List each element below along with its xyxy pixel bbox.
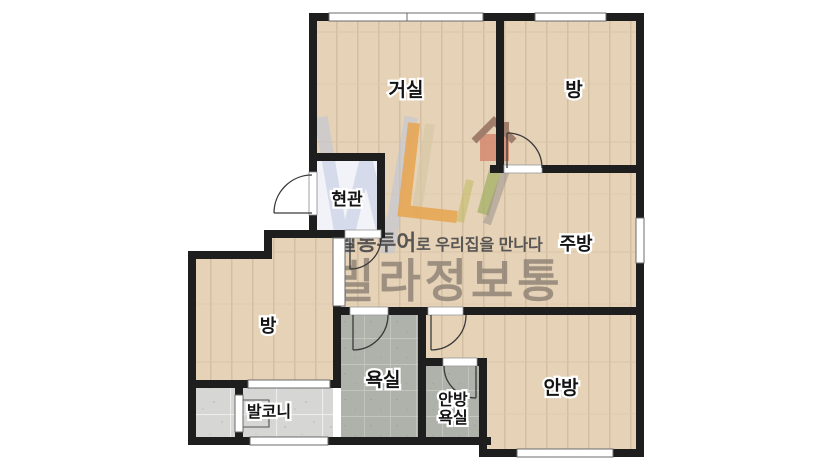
label-kitchen: 주방 [559,234,593,254]
floorplan-canvas: 빌통투어로 우리집을 만나다 빌라정보통 [0,0,840,472]
wall-segment [483,449,517,457]
threshold-bedroom-top [504,165,542,173]
wall-segment [188,251,272,259]
wall-segment [264,230,272,259]
wall-segment [418,315,426,445]
wall-segment [463,307,644,315]
label-bedroom-left: 방 [260,316,277,336]
wall-segment [542,165,644,173]
window-top-bedroom [535,13,606,21]
label-master-bathroom-line1: 안방 [438,391,468,409]
floor-bedroom-left [196,238,341,382]
wall-segment [328,437,491,445]
window-right-kitchen [636,218,644,263]
wall-segment [479,358,487,457]
threshold-master-bedroom [428,307,463,315]
label-master-bathroom-line2: 욕실 [438,409,467,427]
label-bathroom: 욕실 [366,369,401,391]
wall-segment [309,161,317,172]
floorplan-svg: 빌통투어로 우리집을 만나다 빌라정보통 [0,0,840,472]
opening-entrance [309,172,317,215]
wall-segment [264,230,345,238]
wall-segment [309,13,317,161]
wall-segment [496,13,504,173]
window-top-living [329,13,483,21]
label-bedroom-top: 방 [565,79,583,101]
wall-segment [309,215,317,238]
wall-segment [388,307,428,315]
label-balcony: 발코니 [247,403,291,421]
wall-segment [333,306,341,388]
sliding-door-bedroom-left [333,238,345,306]
sliding-door-balcony [248,380,330,388]
label-entrance: 현관 [331,190,363,209]
window-bottom-balcony [250,437,328,445]
wall-segment [188,380,248,388]
wall-segment [377,153,385,238]
watermark-brand: 빌라정보통 [332,255,564,307]
threshold-bathroom [350,307,388,315]
wall-segment [188,251,196,445]
opening-balcony-divider [235,395,243,432]
wall-segment [309,153,385,161]
threshold-entrance-hall [345,230,381,238]
label-master-bedroom: 안방 [544,377,579,399]
window-bottom-master [517,449,613,457]
threshold-master-bathroom [443,358,477,366]
label-living: 거실 [389,79,424,101]
wall-segment [483,13,535,21]
